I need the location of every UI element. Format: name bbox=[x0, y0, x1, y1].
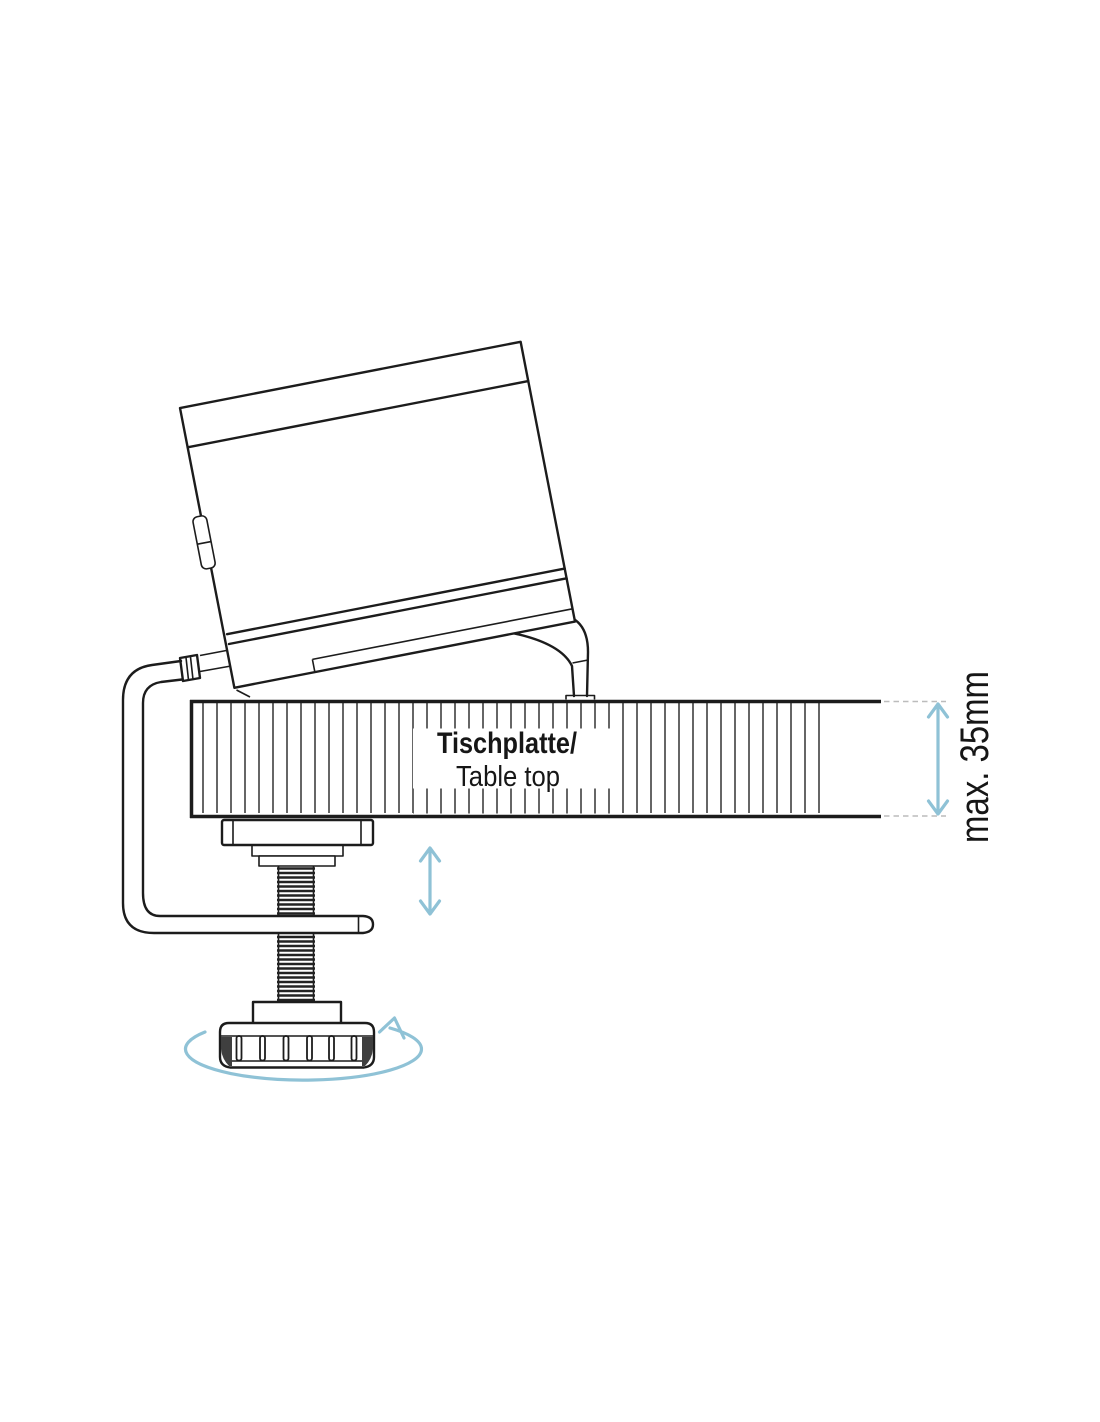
clamp-screw-assembly bbox=[220, 820, 374, 1068]
threaded-rod-lower bbox=[277, 934, 315, 1001]
pressure-pad bbox=[222, 820, 373, 845]
table-label-de: Tischplatte/ bbox=[437, 727, 578, 760]
thickness-dimension-arrow-icon bbox=[929, 704, 948, 814]
table-hatch-left bbox=[197, 703, 413, 813]
leg-seam bbox=[573, 660, 589, 663]
clamp-mount-diagram: Tischplatte/ Table top bbox=[0, 0, 1100, 1422]
pad-step-1 bbox=[252, 846, 343, 857]
table-hatch-right bbox=[611, 703, 823, 813]
clamp-knob bbox=[220, 1023, 374, 1068]
screw-travel-arrow-icon bbox=[421, 848, 440, 914]
pad-step-2 bbox=[259, 856, 335, 866]
device-body bbox=[180, 342, 575, 688]
table-hatch-top-stubs bbox=[413, 703, 611, 729]
threaded-rod-upper bbox=[277, 866, 315, 915]
table-label-en: Table top bbox=[456, 761, 560, 793]
dimension-label: max. 35mm bbox=[953, 671, 997, 843]
hinge-band bbox=[200, 650, 231, 672]
device-box bbox=[171, 342, 575, 690]
knob-hub bbox=[253, 1002, 341, 1024]
leg-foot bbox=[566, 696, 595, 700]
leg-inner-edge bbox=[502, 631, 574, 696]
box-corner-foot bbox=[237, 690, 251, 697]
table-top: Tischplatte/ Table top bbox=[190, 700, 881, 818]
